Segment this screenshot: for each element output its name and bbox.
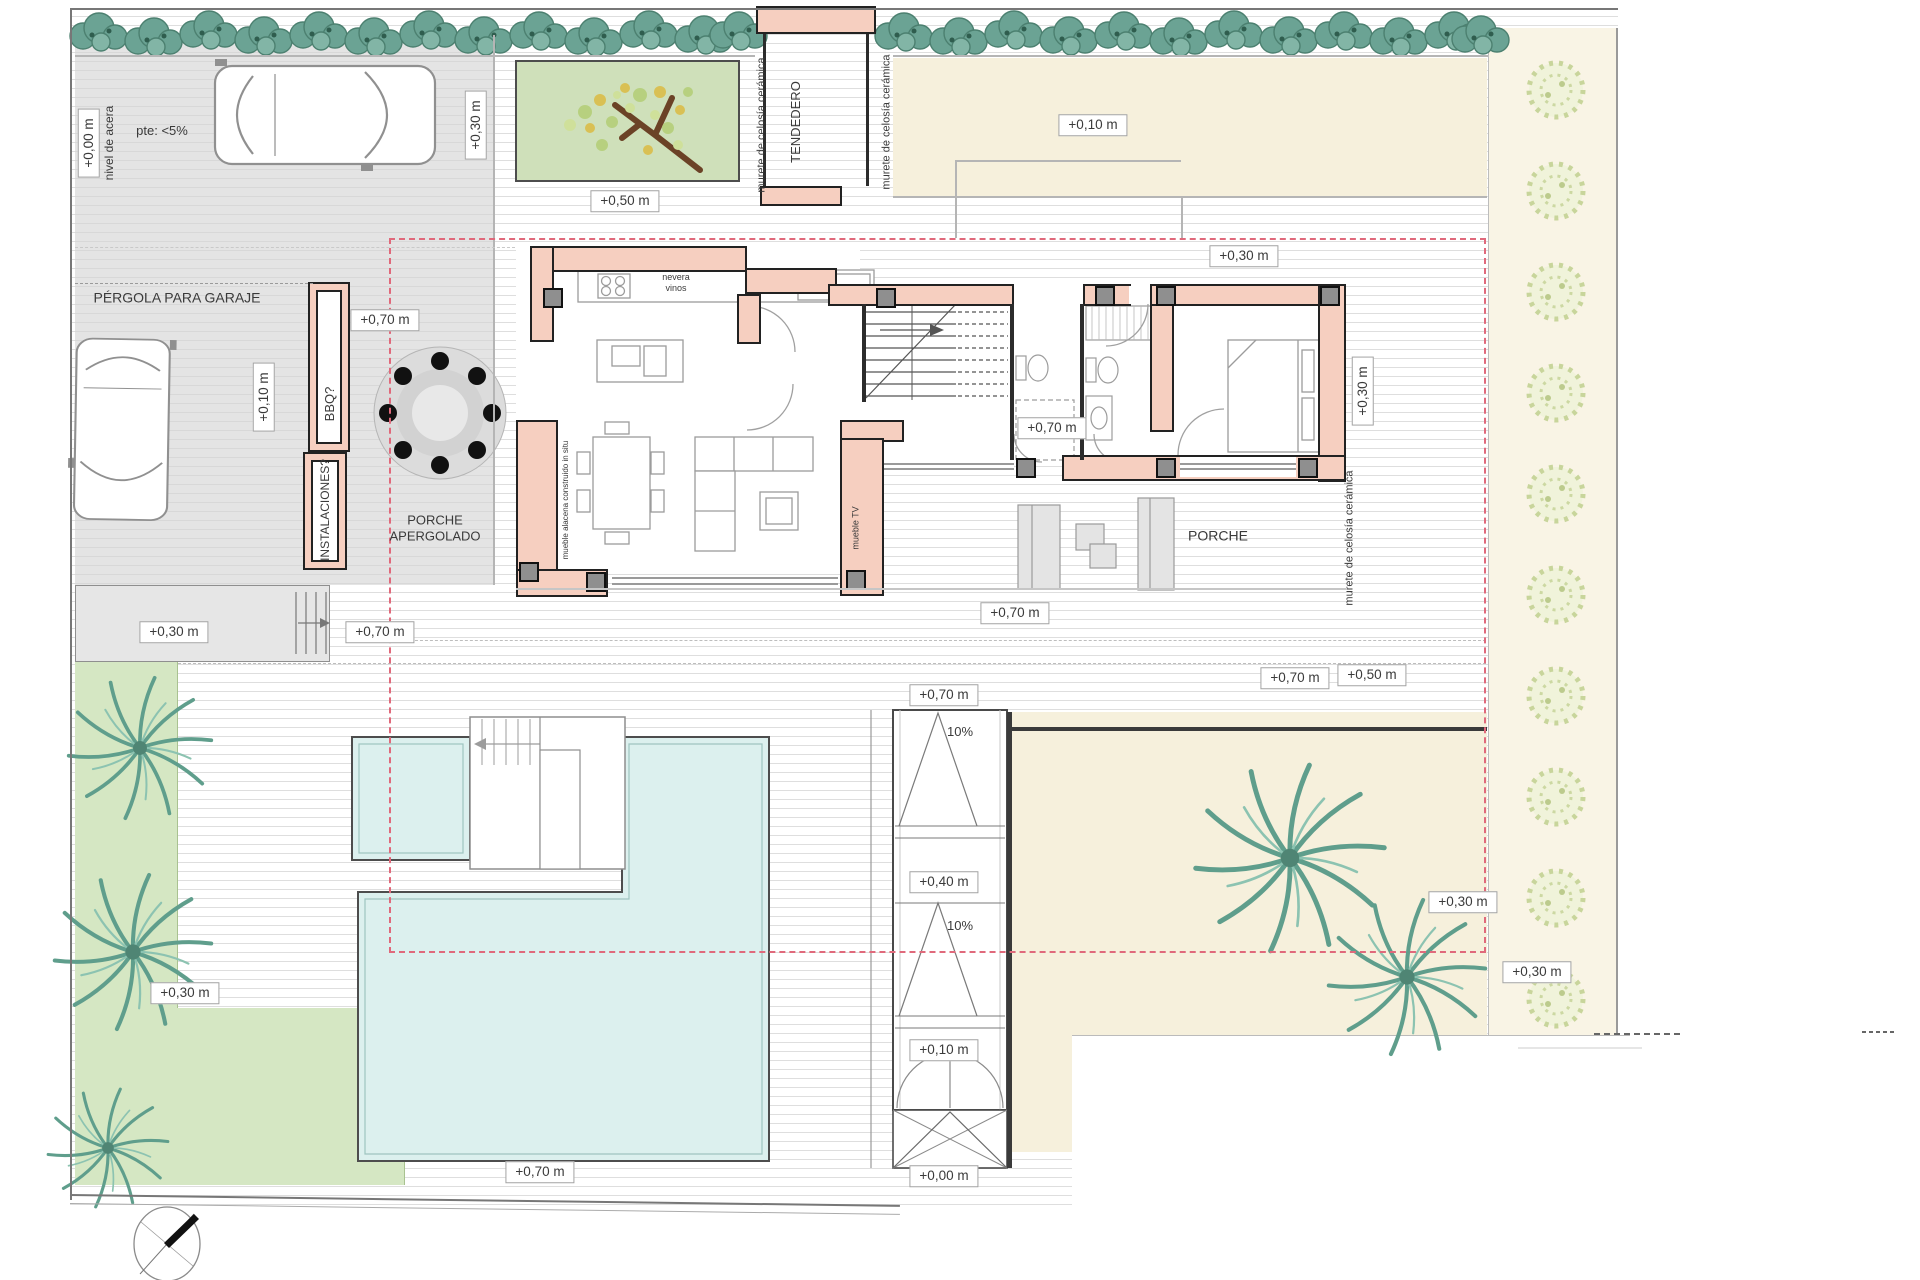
room-porche: PORCHE [1188,528,1248,545]
boundary-north [70,8,1618,10]
elev-porch-deck: +0,70 m [980,602,1049,624]
note-bbq: BBQ? [322,387,338,422]
hedge-base-east [893,55,1488,57]
tendedero-wall-south [760,186,842,206]
elev-bedroom-side: +0,30 m [1352,356,1374,425]
hedge-base-west [75,55,755,57]
room-tendedero: TENDEDERO [788,81,804,163]
elev-ramp-street: +0,00 m [909,1165,978,1187]
elev-entry-court: +0,30 m [1209,245,1278,267]
note-instalaciones: INSTALACIONES? [318,459,332,561]
label-mueble-tv: mueble TV [851,506,862,549]
boundary-west [70,8,72,1200]
elev-deck-top: +0,70 m [350,309,419,331]
elev-garage-inner: +0,10 m [253,362,275,431]
elev-southeast-yard: +0,30 m [1428,891,1497,913]
entry-step-edge-h [955,160,1181,162]
signature-marks [1518,1032,1896,1048]
compass-north-icon [134,1207,200,1280]
elev-east-edge: +0,30 m [1502,961,1571,983]
elev-hall: +0,70 m [1017,417,1086,439]
elev-ramp-top: +0,70 m [909,684,978,706]
tendedero-wall-north [756,6,876,34]
elev-ramp-mid: +0,40 m [909,871,978,893]
elev-pool-deck: +0,70 m [505,1161,574,1183]
tendedero-side-east [866,34,869,186]
gravel-ne-south-edge [893,196,1487,198]
label-nevera-vinos: nevera vinos [662,272,690,294]
car-top [215,59,435,171]
entry-step-edge-v2 [1181,196,1183,240]
elev-garage-street: +0,00 m [78,108,100,177]
garden-tree [564,83,700,170]
note-ramp-slope-2: 10% [947,918,973,934]
note-murete-east: murete de celosía cerámica [1343,470,1356,605]
note-pergola-garaje: PÉRGOLA PARA GARAJE [93,290,260,307]
note-murete-right: murete de celosía cerámica [880,54,893,189]
car-side [67,338,177,520]
note-ramp-slope-1: 10% [947,724,973,740]
site-plan-canvas: +0,00 mnivel de acerapte: <5%+0,30 m+0,5… [0,0,1920,1280]
elev-top-garden: +0,30 m [465,90,487,159]
elev-driveway: +0,30 m [139,621,208,643]
pergola-outline-dashed [75,283,313,284]
driveway-steps [296,592,330,654]
note-nivel-acera: nivel de acera [102,106,116,181]
elev-northeast-yard: +0,10 m [1058,114,1127,136]
setback-line [389,238,1486,953]
note-pendiente: pte: <5% [136,123,188,139]
note-murete-left: murete de celosía cerámica [755,57,768,192]
room-porche-apergolado: PORCHE APERGOLADO [389,512,480,543]
label-mueble-alacena: mueble alacena construido in situ [561,441,571,560]
entry-step-edge-v1 [955,160,957,238]
elev-deck-east-a: +0,70 m [1260,667,1329,689]
elev-deck-east-b: +0,50 m [1337,664,1406,686]
elev-ramp-low: +0,10 m [909,1039,978,1061]
elev-deck-west: +0,70 m [345,621,414,643]
elev-southwest-grass: +0,30 m [150,982,219,1004]
tree-row-east [1529,63,1583,1026]
elev-garden-patch: +0,50 m [590,190,659,212]
